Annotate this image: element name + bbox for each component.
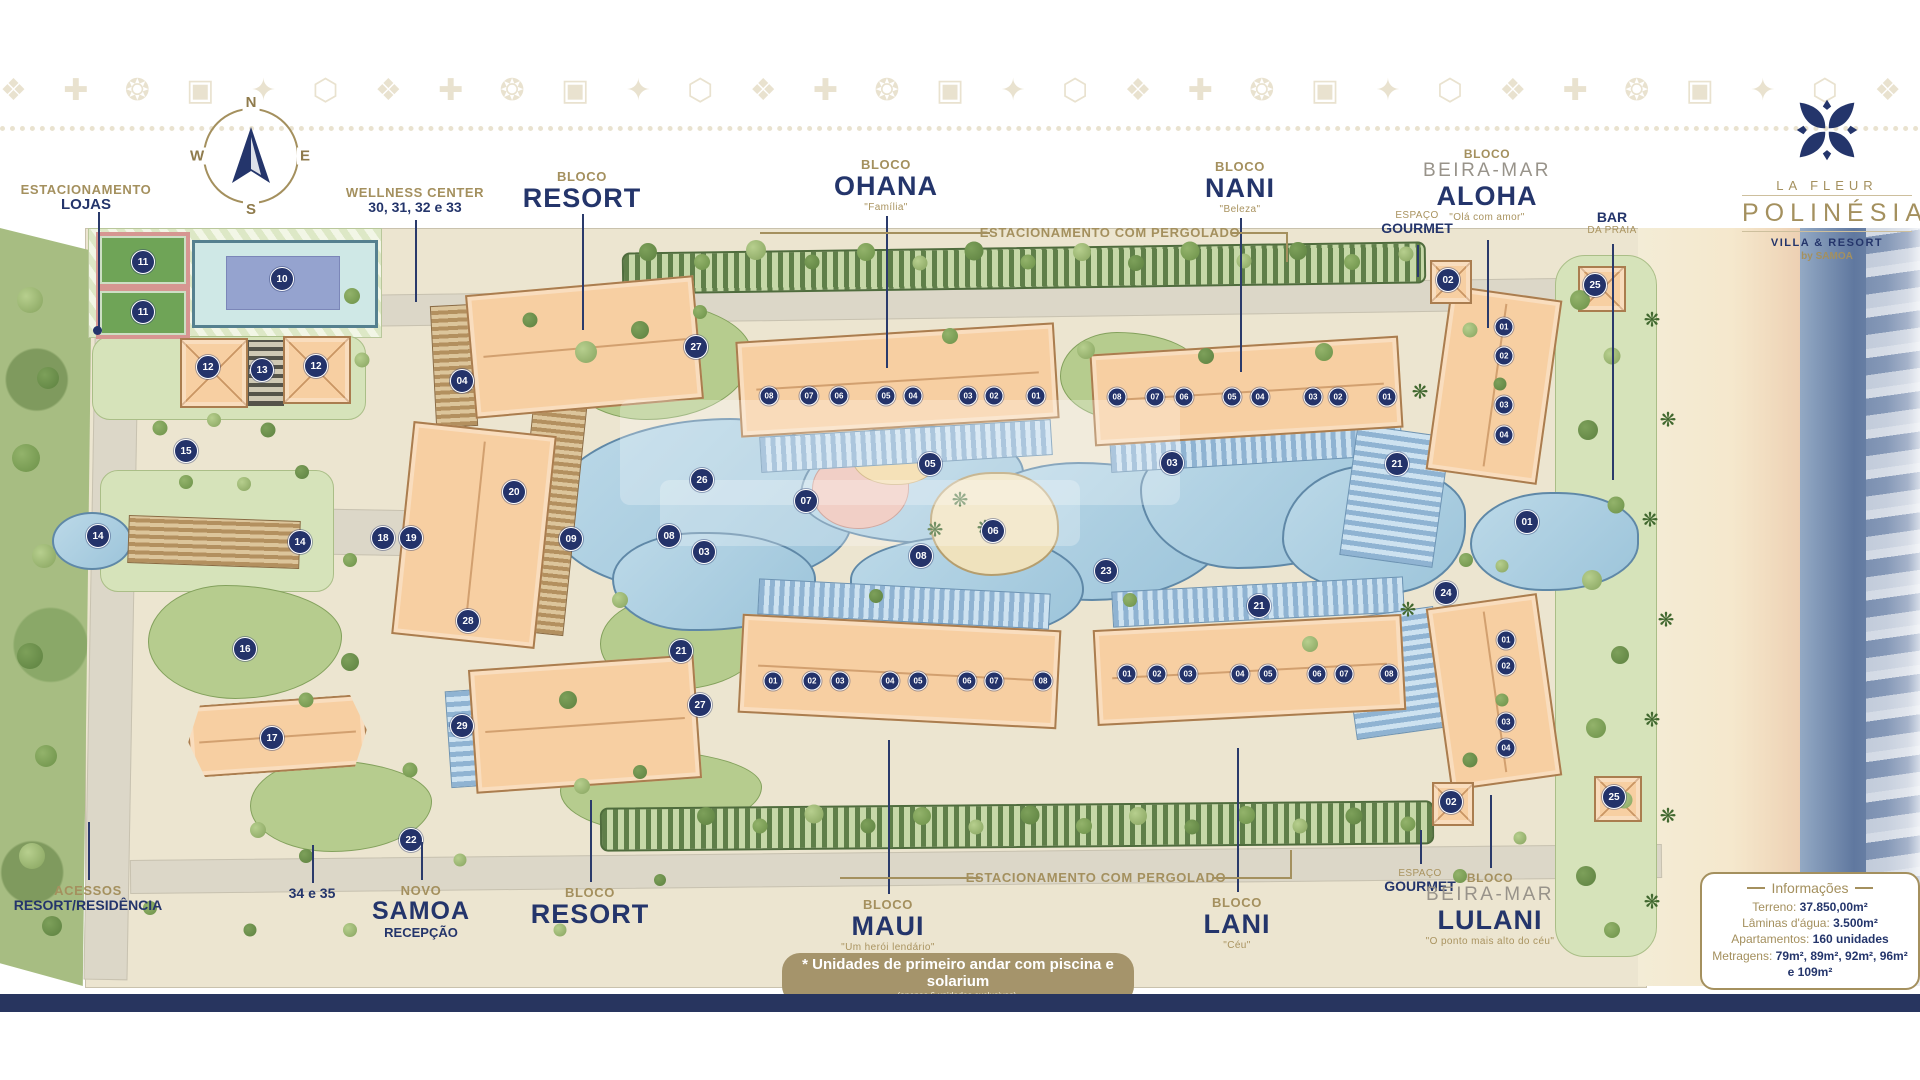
- facility-number-badge: 17: [260, 726, 284, 750]
- label-sub: "Céu": [1204, 940, 1271, 951]
- tree-icon: [344, 288, 360, 304]
- unit-number-badge: 05: [909, 672, 928, 691]
- compass-south: S: [243, 201, 259, 218]
- tree-icon: [1021, 806, 1040, 825]
- brand-by: by SAMOA: [1742, 251, 1912, 262]
- compass-needle: [228, 127, 274, 185]
- label-name: RESORT: [523, 184, 642, 214]
- label-name: SAMOA: [372, 898, 470, 926]
- unit-number-badge: 07: [800, 387, 819, 406]
- label-estacionamento-lojas: ESTACIONAMENTO LOJAS: [21, 183, 152, 214]
- tree-icon: [1073, 243, 1091, 261]
- tree-icon: [1021, 255, 1036, 270]
- info-row: Terreno: 37.850,00m²: [1710, 899, 1910, 915]
- pergolado-line: [1286, 232, 1288, 262]
- facility-number-badge: 10: [270, 267, 294, 291]
- label-name: 30, 31, 32 e 33: [346, 200, 484, 215]
- palm-tree-icon: ❋: [1644, 890, 1661, 915]
- unit-number-badge: 06: [1308, 665, 1327, 684]
- tree-icon: [697, 807, 715, 825]
- bottom-navy-bar: [0, 994, 1920, 1012]
- facility-number-badge: 21: [669, 639, 693, 663]
- facility-number-badge: 12: [304, 354, 328, 378]
- palm-tree-icon: ❋: [1644, 708, 1661, 733]
- label-name: ALOHA: [1423, 182, 1551, 212]
- facility-number-badge: 16: [233, 637, 257, 661]
- tree-icon: [299, 693, 314, 708]
- unit-number-badge: 01: [764, 672, 783, 691]
- info-row: Metragens: 79m², 89m², 92m², 96m² e 109m…: [1710, 948, 1910, 980]
- tree-icon: [1129, 807, 1147, 825]
- tree-icon: [633, 765, 647, 779]
- unit-number-badge: 04: [881, 672, 900, 691]
- tree-icon: [1302, 636, 1318, 652]
- facility-number-badge: 25: [1602, 785, 1626, 809]
- tree-icon: [1293, 819, 1308, 834]
- tree-icon: [869, 589, 883, 603]
- label-bar-da-praia: BAR DA PRAIA: [1587, 210, 1636, 236]
- unit-number-badge: 04: [1231, 665, 1250, 684]
- palm-tree-icon: ❋: [1412, 380, 1429, 405]
- facility-number-badge: 26: [690, 468, 714, 492]
- label-name: LOJAS: [21, 197, 152, 214]
- leader-line: [1487, 240, 1489, 328]
- label-name: LANI: [1204, 910, 1271, 940]
- info-value: 3.500m²: [1833, 916, 1878, 930]
- label-bloco-resort-top: BLOCO RESORT: [523, 170, 642, 214]
- info-box: Informações Terreno: 37.850,00m² Lâminas…: [1700, 872, 1920, 990]
- tree-icon: [1496, 560, 1509, 573]
- facility-number-badge: 08: [657, 524, 681, 548]
- palm-tree-icon: ❋: [1660, 804, 1677, 829]
- tree-icon: [1514, 832, 1527, 845]
- tree-icon: [1123, 593, 1137, 607]
- facility-number-badge: 11: [131, 250, 155, 274]
- leader-line: [312, 845, 314, 883]
- leader-line: [1420, 830, 1422, 864]
- facility-number-badge: 11: [131, 300, 155, 324]
- label-top: ESTACIONAMENTO: [21, 183, 152, 197]
- compass-east: E: [297, 148, 313, 165]
- unit-number-badge: 08: [1380, 665, 1399, 684]
- label-acessos: ACESSOS RESORT/RESIDÊNCIA: [14, 884, 163, 914]
- unit-number-badge: 02: [985, 387, 1004, 406]
- label-name: NANI: [1205, 174, 1275, 204]
- brand-tagline: VILLA & RESORT: [1742, 237, 1912, 249]
- unit-number-badge: 04: [1495, 426, 1514, 445]
- facility-number-badge: 06: [981, 519, 1005, 543]
- pergola-walk: [127, 515, 301, 569]
- unit-number-badge: 07: [1146, 388, 1165, 407]
- tree-icon: [805, 805, 824, 824]
- brand-la-fleur: LA FLEUR: [1742, 178, 1912, 193]
- label-top: NOVO: [372, 884, 470, 898]
- facility-number-badge: 22: [399, 828, 423, 852]
- tree-icon: [654, 874, 666, 886]
- tree-icon: [1399, 247, 1414, 262]
- label-name: RESORT/RESIDÊNCIA: [14, 898, 163, 913]
- tree-icon: [1076, 818, 1092, 834]
- info-value: 79m², 89m², 92m², 96m² e 109m²: [1776, 949, 1908, 979]
- label-bloco-lani: BLOCO LANI "Céu": [1204, 896, 1271, 951]
- label-top: WELLNESS CENTER: [346, 186, 484, 200]
- compass-rose: N E S W: [193, 98, 309, 214]
- brand-name: POLINÉSIA: [1742, 195, 1912, 232]
- leader-line: [1612, 244, 1614, 480]
- label-bloco-lulani: BLOCO BEIRA-MAR LULANI "O ponto mais alt…: [1426, 872, 1555, 947]
- tree-icon: [295, 465, 309, 479]
- building-resort-bottom: [468, 654, 702, 793]
- label-sub: "O ponto mais alto do céu": [1426, 936, 1555, 947]
- tree-icon: [341, 653, 359, 671]
- tree-icon: [965, 242, 984, 261]
- tree-icon: [1604, 922, 1620, 938]
- tree-icon: [746, 240, 766, 260]
- facility-number-badge: 01: [1515, 510, 1539, 534]
- facility-number-badge: 28: [456, 609, 480, 633]
- unit-number-badge: 01: [1118, 665, 1137, 684]
- unit-number-badge: 03: [959, 387, 978, 406]
- label-name: BAR: [1587, 210, 1636, 225]
- facility-number-badge: 21: [1247, 594, 1271, 618]
- unit-number-badge: 04: [904, 387, 923, 406]
- label-name: GOURMET: [1381, 221, 1453, 236]
- tree-icon: [1077, 341, 1095, 359]
- facility-number-badge: 12: [196, 355, 220, 379]
- facility-number-badge: 04: [450, 369, 474, 393]
- unit-number-badge: 01: [1378, 388, 1397, 407]
- info-row: Apartamentos: 160 unidades: [1710, 931, 1910, 947]
- label-name: OHANA: [834, 172, 938, 202]
- tree-icon: [559, 691, 577, 709]
- palm-tree-icon: ❋: [1660, 408, 1677, 433]
- brand-logo: LA FLEUR POLINÉSIA VILLA & RESORT by SAM…: [1742, 88, 1912, 262]
- unit-number-badge: 03: [1179, 665, 1198, 684]
- label-wellness-center: WELLNESS CENTER 30, 31, 32 e 33: [346, 186, 484, 216]
- label-bloco-ohana: BLOCO OHANA "Família": [834, 158, 938, 213]
- tree-icon: [237, 477, 251, 491]
- tree-icon: [261, 423, 276, 438]
- unit-number-badge: 08: [760, 387, 779, 406]
- palm-tree-icon: ❋: [1658, 608, 1675, 633]
- unit-number-badge: 06: [1175, 388, 1194, 407]
- tree-icon: [639, 243, 657, 261]
- unit-number-badge: 02: [1329, 388, 1348, 407]
- building-lani: [1093, 614, 1407, 726]
- tree-icon: [250, 822, 266, 838]
- unit-number-badge: 01: [1495, 318, 1514, 337]
- label-pergolado-top: ESTACIONAMENTO COM PERGOLADO: [980, 226, 1240, 240]
- tree-icon: [1237, 254, 1252, 269]
- label-bloco-maui: BLOCO MAUI "Um herói lendário": [841, 898, 935, 953]
- label-bloco-resort-bottom: BLOCO RESORT: [531, 886, 650, 930]
- tree-icon: [942, 328, 958, 344]
- tree-icon: [1185, 820, 1200, 835]
- info-label: Metragens:: [1712, 949, 1775, 963]
- tree-icon: [1611, 646, 1629, 664]
- site-map-page: ❖ ✚ ❂ ▣ ✦ ⬡ ❖ ✚ ❂ ▣ ✦ ⬡ ❖ ✚ ❂ ▣ ✦ ⬡ ❖ ✚ …: [0, 0, 1920, 1080]
- facility-number-badge: 18: [371, 526, 395, 550]
- label-top: BLOCO: [1205, 160, 1275, 174]
- leader-line: [1240, 218, 1242, 372]
- facility-number-badge: 27: [684, 335, 708, 359]
- unit-number-badge: 02: [1497, 657, 1516, 676]
- label-mid: BEIRA-MAR: [1423, 161, 1551, 182]
- tree-icon: [631, 321, 649, 339]
- flower-icon: [1785, 88, 1869, 172]
- info-label: Terreno:: [1752, 900, 1799, 914]
- compass-west: W: [187, 148, 207, 165]
- facility-number-badge: 20: [502, 480, 526, 504]
- footnote-line1: * Unidades de primeiro andar com piscina…: [782, 956, 1134, 990]
- facility-number-badge: 25: [1583, 273, 1607, 297]
- facility-number-badge: 05: [918, 452, 942, 476]
- label-bloco-nani: BLOCO NANI "Beleza": [1205, 160, 1275, 215]
- facility-number-badge: 07: [794, 489, 818, 513]
- leader-line: [590, 800, 592, 882]
- unit-number-badge: 06: [958, 672, 977, 691]
- tree-icon: [403, 763, 418, 778]
- tree-icon: [17, 287, 43, 313]
- tree-icon: [19, 843, 45, 869]
- unit-number-badge: 06: [830, 387, 849, 406]
- tree-icon: [1315, 343, 1333, 361]
- unit-number-badge: 01: [1027, 387, 1046, 406]
- facility-number-badge: 03: [692, 540, 716, 564]
- facility-number-badge: 23: [1094, 559, 1118, 583]
- unit-number-badge: 05: [877, 387, 896, 406]
- tree-icon: [1586, 718, 1606, 738]
- tree-icon: [1198, 348, 1214, 364]
- tree-icon: [913, 256, 928, 271]
- label-novo-samoa: NOVO SAMOA RECEPÇÃO: [372, 884, 470, 940]
- label-34-35: 34 e 35: [289, 886, 336, 901]
- tree-icon: [861, 819, 876, 834]
- pergolado-line: [1232, 232, 1288, 234]
- tree-icon: [694, 254, 710, 270]
- unit-number-badge: 04: [1497, 739, 1516, 758]
- tree-icon: [969, 820, 984, 835]
- leader-line: [421, 842, 423, 880]
- tree-icon: [913, 807, 931, 825]
- tree-icon: [1459, 553, 1473, 567]
- unit-number-badge: 03: [1495, 396, 1514, 415]
- label-top: BLOCO: [841, 898, 935, 912]
- unit-number-badge: 03: [1304, 388, 1323, 407]
- facility-number-badge: 29: [450, 714, 474, 738]
- leader-line: [415, 220, 417, 302]
- unit-number-badge: 03: [831, 672, 850, 691]
- leader-line: [888, 740, 890, 894]
- label-name: LULANI: [1426, 906, 1555, 936]
- label-sub: "Um herói lendário": [841, 942, 935, 953]
- facility-number-badge: 27: [688, 693, 712, 717]
- tree-icon: [574, 778, 590, 794]
- tree-icon: [575, 341, 597, 363]
- tree-icon: [244, 924, 257, 937]
- label-mid: BEIRA-MAR: [1426, 885, 1555, 906]
- tree-icon: [1463, 323, 1478, 338]
- unit-number-badge: 02: [1495, 347, 1514, 366]
- pergola-parking-south: [600, 800, 1434, 851]
- tree-icon: [1237, 806, 1255, 824]
- tree-icon: [42, 916, 62, 936]
- facility-number-badge: 24: [1434, 581, 1458, 605]
- tree-icon: [1181, 242, 1200, 261]
- pergolado-line: [1290, 850, 1292, 879]
- tree-icon: [1496, 694, 1509, 707]
- leader-line: [886, 216, 888, 368]
- facility-number-badge: 14: [288, 530, 312, 554]
- unit-number-badge: 07: [1335, 665, 1354, 684]
- palm-tree-icon: ❋: [1642, 508, 1659, 533]
- pergolado-line: [760, 232, 990, 234]
- tree-icon: [1401, 817, 1416, 832]
- label-top: BLOCO: [531, 886, 650, 900]
- palm-tree-icon: ❋: [1644, 308, 1661, 333]
- tree-icon: [693, 305, 707, 319]
- tree-icon: [857, 243, 875, 261]
- facility-number-badge: 08: [909, 544, 933, 568]
- label-sub: "Beleza": [1205, 204, 1275, 215]
- tree-icon: [753, 819, 768, 834]
- tree-icon: [32, 544, 56, 568]
- tree-icon: [17, 643, 43, 669]
- info-label: Lâminas d'água:: [1742, 916, 1833, 930]
- tree-icon: [454, 854, 467, 867]
- label-top: BLOCO: [523, 170, 642, 184]
- leader-line: [88, 822, 90, 880]
- tree-icon: [1463, 753, 1478, 768]
- unit-number-badge: 02: [1148, 665, 1167, 684]
- label-espaco-gourmet-top: ESPAÇO GOURMET: [1381, 210, 1453, 236]
- facility-number-badge: 02: [1439, 790, 1463, 814]
- facility-number-badge: 03: [1160, 451, 1184, 475]
- info-title: Informações: [1710, 880, 1910, 896]
- left-vegetation: [0, 228, 92, 986]
- tree-icon: [207, 413, 221, 427]
- label-pergolado-bottom: ESTACIONAMENTO COM PERGOLADO: [966, 871, 1226, 885]
- tree-icon: [1582, 570, 1602, 590]
- info-value: 37.850,00m²: [1800, 900, 1868, 914]
- label-sub: DA PRAIA: [1587, 225, 1636, 236]
- watermark-2: [660, 480, 1080, 546]
- facility-number-badge: 14: [86, 524, 110, 548]
- tree-icon: [153, 421, 168, 436]
- tree-icon: [355, 353, 370, 368]
- tree-icon: [523, 313, 538, 328]
- tree-icon: [612, 592, 628, 608]
- label-name: RESORT: [531, 900, 650, 930]
- label-top: BLOCO: [1204, 896, 1271, 910]
- facility-number-badge: 15: [174, 439, 198, 463]
- tree-icon: [1344, 254, 1360, 270]
- label-sub: RECEPÇÃO: [372, 926, 470, 940]
- compass-north: N: [243, 94, 260, 111]
- facility-number-badge: 09: [559, 527, 583, 551]
- unit-number-badge: 02: [803, 672, 822, 691]
- unit-number-badge: 05: [1259, 665, 1278, 684]
- info-row: Lâminas d'água: 3.500m²: [1710, 915, 1910, 931]
- tree-icon: [37, 367, 59, 389]
- unit-number-badge: 04: [1251, 388, 1270, 407]
- unit-number-badge: 03: [1497, 713, 1516, 732]
- facility-number-badge: 21: [1385, 452, 1409, 476]
- tree-icon: [1128, 255, 1144, 271]
- leader-line: [1417, 245, 1419, 277]
- tree-icon: [1576, 866, 1596, 886]
- tree-icon: [343, 553, 357, 567]
- building-maui: [738, 614, 1062, 730]
- leader-line: [582, 214, 584, 330]
- tree-icon: [35, 745, 57, 767]
- label-name: MAUI: [841, 912, 935, 942]
- tree-icon: [343, 923, 357, 937]
- unit-number-badge: 08: [1108, 388, 1127, 407]
- facility-number-badge: 13: [250, 358, 274, 382]
- info-label: Apartamentos:: [1731, 932, 1812, 946]
- facility-number-badge: 19: [399, 526, 423, 550]
- palm-tree-icon: ❋: [1400, 598, 1417, 623]
- unit-number-badge: 01: [1497, 631, 1516, 650]
- label-sub: "Família": [834, 202, 938, 213]
- leader-line: [98, 212, 100, 330]
- tree-icon: [299, 849, 313, 863]
- unit-number-badge: 05: [1223, 388, 1242, 407]
- info-value: 160 unidades: [1813, 932, 1889, 946]
- leader-line: [1490, 795, 1492, 868]
- facility-number-badge: 02: [1436, 268, 1460, 292]
- pergolado-line: [840, 877, 980, 879]
- tree-icon: [1608, 497, 1625, 514]
- tree-icon: [1346, 808, 1363, 825]
- tree-icon: [1494, 378, 1507, 391]
- unit-number-badge: 08: [1034, 672, 1053, 691]
- tree-icon: [179, 475, 193, 489]
- tree-icon: [1578, 420, 1598, 440]
- tree-icon: [1289, 242, 1307, 260]
- unit-number-badge: 07: [985, 672, 1004, 691]
- label-top: BLOCO: [834, 158, 938, 172]
- tree-icon: [12, 444, 40, 472]
- leader-line: [1237, 748, 1239, 892]
- tree-icon: [805, 255, 820, 270]
- leader-dot: [93, 326, 102, 335]
